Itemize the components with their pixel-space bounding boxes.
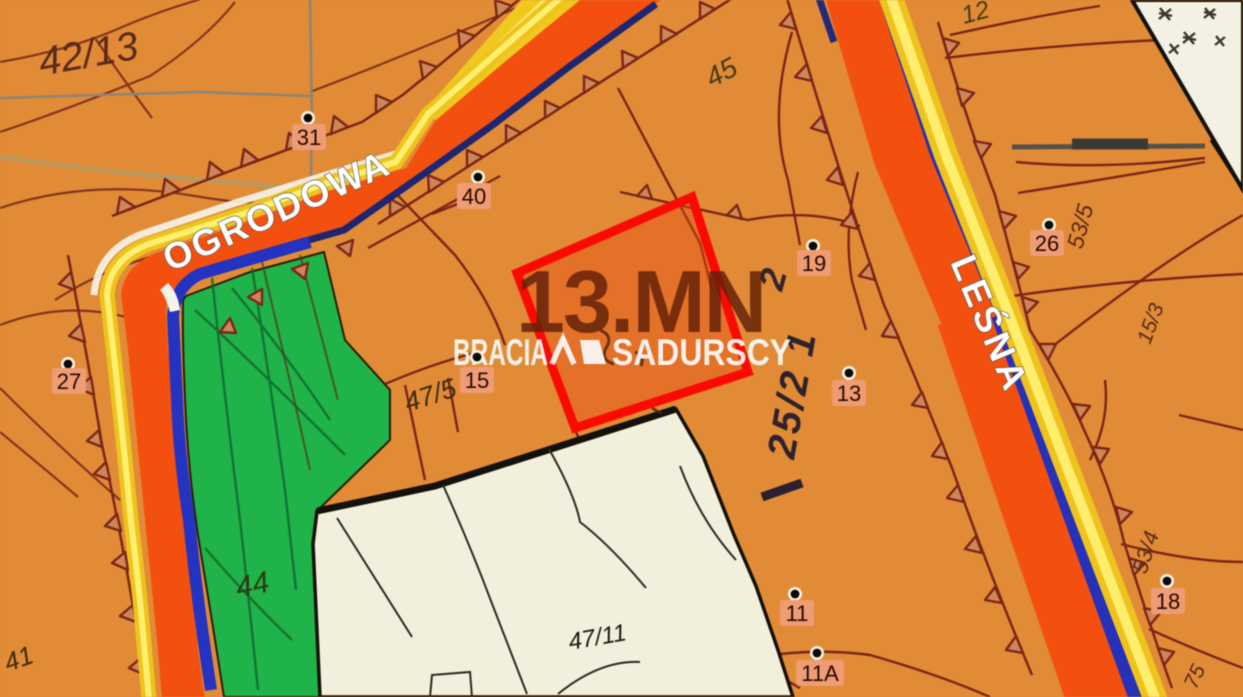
svg-text:27: 27 [57,369,81,394]
svg-text:11: 11 [786,601,809,626]
svg-text:13: 13 [837,381,861,406]
svg-text:44: 44 [233,566,273,605]
svg-text:40: 40 [462,184,486,209]
svg-text:15: 15 [465,368,489,393]
svg-text:18: 18 [1156,589,1180,614]
svg-text:11A: 11A [801,661,839,686]
svg-text:31: 31 [297,125,321,150]
svg-text:19: 19 [802,251,826,276]
svg-text:26: 26 [1035,231,1059,256]
svg-text:BRACIA: BRACIA [453,332,548,373]
svg-text:SADURSCY: SADURSCY [612,332,791,373]
